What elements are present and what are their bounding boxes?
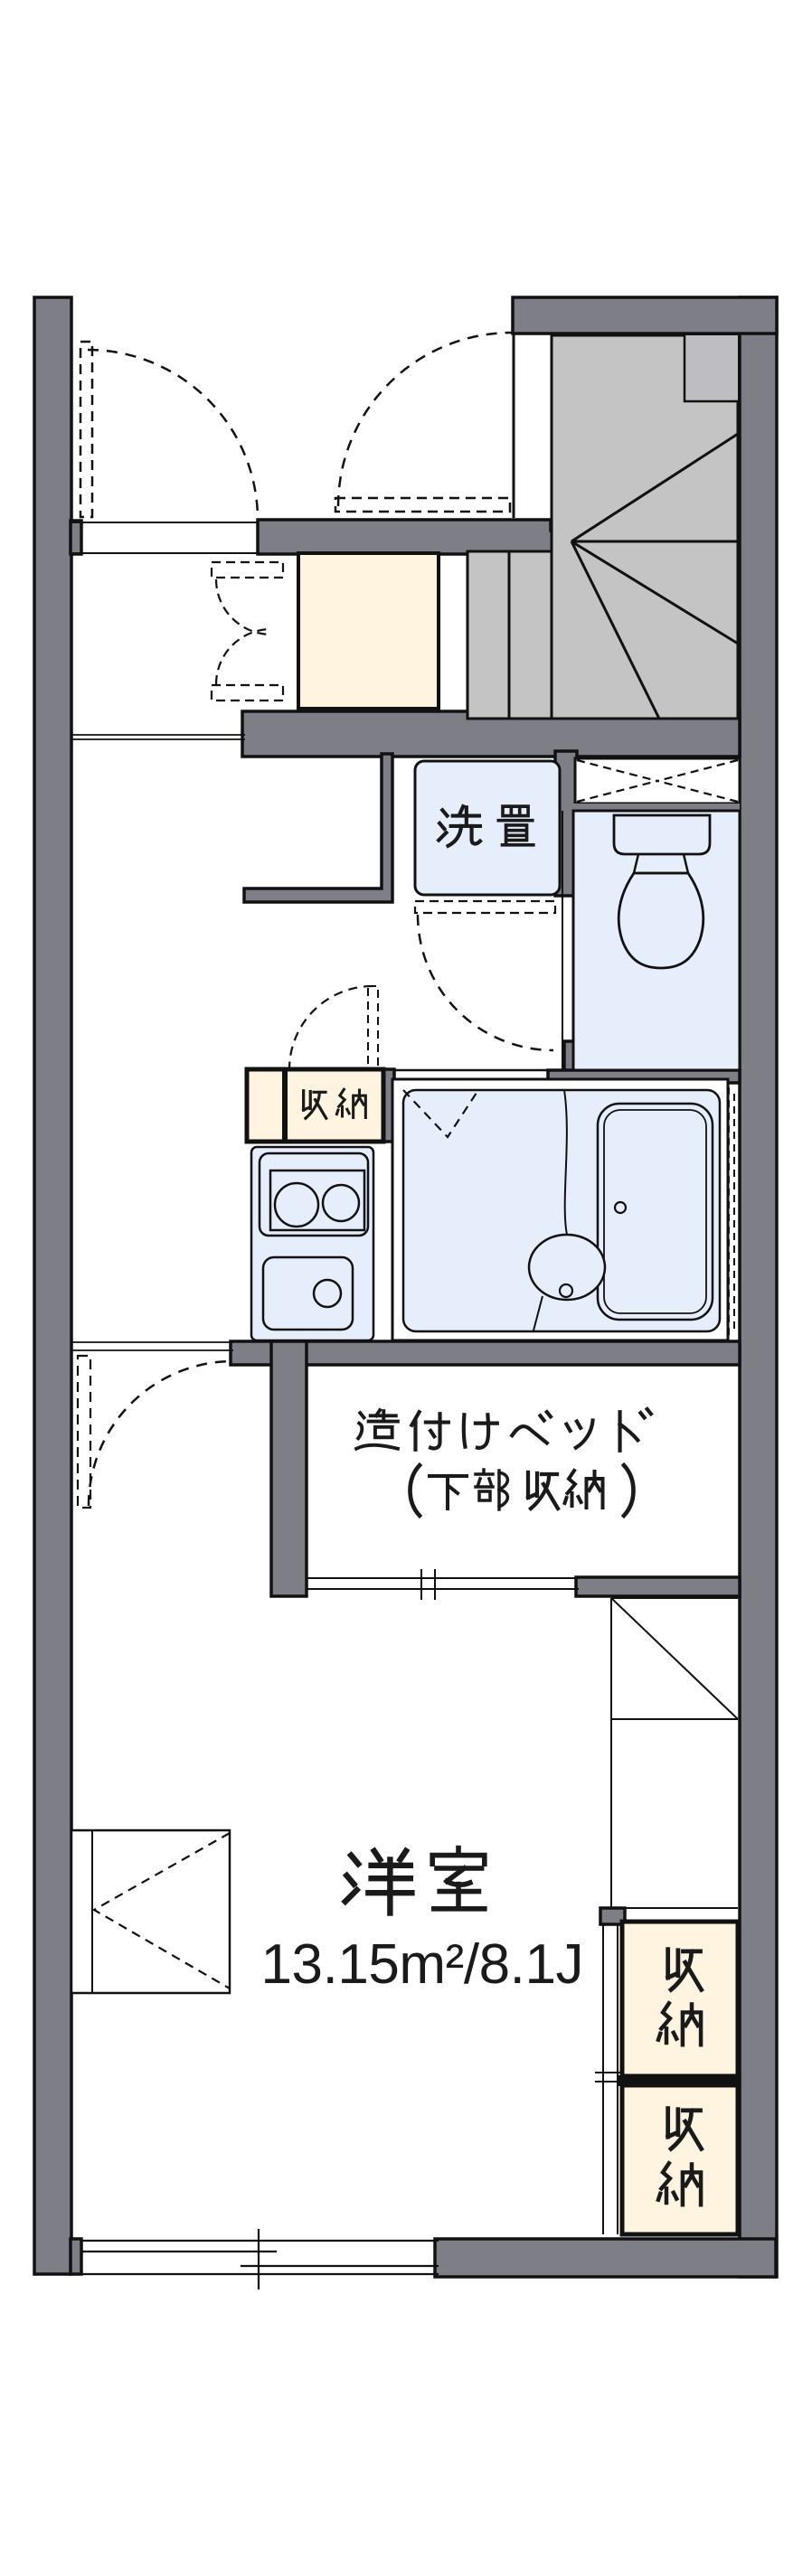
svg-text:13.15m²/8.1J: 13.15m²/8.1J	[261, 1933, 584, 1996]
